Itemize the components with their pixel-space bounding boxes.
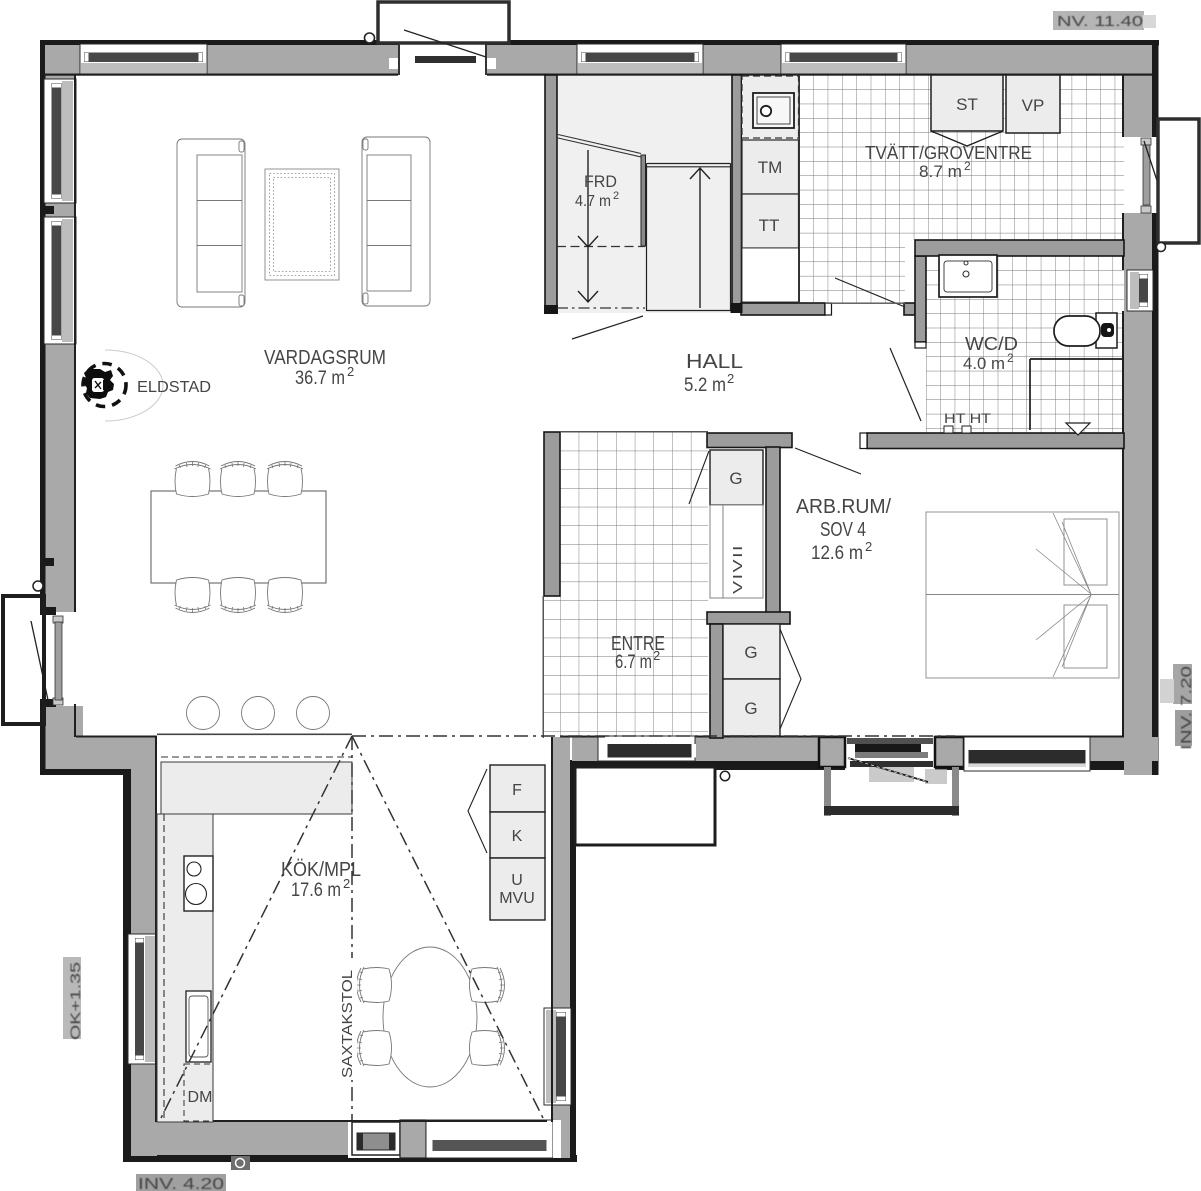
svg-text:K: K xyxy=(512,828,523,845)
svg-text:VP: VP xyxy=(1022,96,1045,115)
svg-text:HT HT: HT HT xyxy=(944,410,992,426)
svg-text:TM: TM xyxy=(758,158,783,177)
svg-text:OK+1.35: OK+1.35 xyxy=(68,962,83,1040)
svg-text:4.0 m: 4.0 m xyxy=(963,354,1005,373)
svg-text:6.7 m: 6.7 m xyxy=(615,652,652,673)
svg-text:12.6 m: 12.6 m xyxy=(811,543,863,564)
svg-text:17.6 m: 17.6 m xyxy=(291,880,341,901)
svg-text:VARDAGSRUM: VARDAGSRUM xyxy=(264,347,386,369)
svg-text:36.7 m: 36.7 m xyxy=(295,368,345,389)
svg-text:G: G xyxy=(744,643,757,662)
svg-text:INV. 4.20: INV. 4.20 xyxy=(138,1176,224,1191)
svg-text:ELDSTAD: ELDSTAD xyxy=(137,379,211,396)
svg-text:2: 2 xyxy=(347,364,354,379)
svg-text:NV. 11.40: NV. 11.40 xyxy=(1057,13,1143,30)
svg-text:2: 2 xyxy=(343,876,350,891)
svg-text:G: G xyxy=(729,469,742,488)
svg-text:SOV 4: SOV 4 xyxy=(820,519,866,541)
svg-text:ARB.RUM/: ARB.RUM/ xyxy=(796,496,891,518)
svg-text:2: 2 xyxy=(613,190,619,202)
svg-text:4.7 m: 4.7 m xyxy=(575,193,611,210)
svg-text:TT: TT xyxy=(759,216,780,235)
svg-text:2: 2 xyxy=(964,159,971,173)
svg-text:MVU: MVU xyxy=(499,890,535,907)
svg-text:2: 2 xyxy=(653,648,660,663)
svg-text:ST: ST xyxy=(956,95,978,114)
svg-text:VIVII: VIVII xyxy=(730,544,745,594)
svg-text:FRD: FRD xyxy=(584,172,617,191)
svg-text:2: 2 xyxy=(1007,351,1014,365)
svg-text:INV. 7.20: INV. 7.20 xyxy=(1178,666,1195,750)
svg-text:SAXTAKSTOL: SAXTAKSTOL xyxy=(340,970,356,1078)
svg-text:G: G xyxy=(744,699,757,718)
svg-text:F: F xyxy=(512,782,522,799)
svg-text:HALL: HALL xyxy=(686,351,743,373)
svg-text:2: 2 xyxy=(727,371,734,386)
svg-text:2: 2 xyxy=(865,539,872,554)
svg-text:U: U xyxy=(511,872,523,889)
svg-text:8.7 m: 8.7 m xyxy=(919,162,962,181)
svg-text:TVÄTT/GROVENTRE: TVÄTT/GROVENTRE xyxy=(865,143,1032,163)
svg-text:5.2 m: 5.2 m xyxy=(684,375,726,396)
svg-text:DM: DM xyxy=(188,1089,213,1106)
